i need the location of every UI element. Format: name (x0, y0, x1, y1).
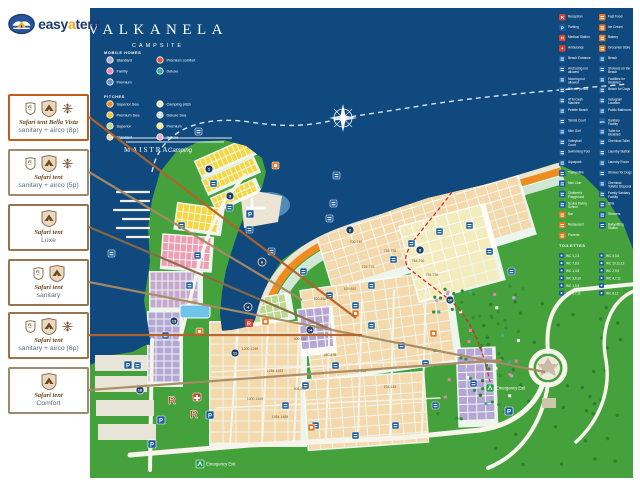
tent-card-airco-6p[interactable]: Safari tent sanitary + airco (6p) (8, 312, 89, 359)
facility-label: Groceries Store (608, 46, 631, 50)
map-facility-icon (470, 380, 477, 387)
wc-entry: WC 7,8,9 (566, 261, 580, 265)
tree (461, 289, 464, 292)
tree (479, 394, 482, 397)
mini-club-icon (559, 180, 566, 187)
tent-subtitle: sanitary + airco (6p) (18, 345, 78, 352)
plot-block (209, 321, 307, 447)
children-s-playground-icon (559, 191, 566, 198)
tree (581, 386, 584, 389)
map-facility-icon (352, 432, 359, 439)
plot-block (297, 305, 338, 357)
forest-mobile-home (433, 349, 436, 352)
reception-letter: R (190, 409, 198, 421)
plot-range-label: 520-552 (314, 297, 327, 301)
legend-label: Camping pitch (167, 103, 191, 107)
tree (519, 311, 522, 314)
ice-cream-icon (599, 24, 606, 31)
forest-mobile-home (469, 329, 472, 332)
wc-entry: WC 1,2,3 (566, 254, 580, 258)
parking-marker: P (248, 212, 252, 218)
map-facility-icon (108, 250, 115, 257)
tree (613, 459, 616, 462)
plot-range-label: 629-652 (344, 287, 357, 291)
map-subtitle: CAMPSITE (132, 43, 184, 49)
facility-glyph: WC (600, 120, 606, 124)
plot-range-label: 400-448 (294, 337, 307, 341)
forest-mobile-home (447, 290, 450, 293)
forest-mobile-home (435, 299, 438, 302)
forest-mobile-home (467, 340, 470, 343)
legend-label: Premium comfort (167, 59, 197, 63)
plot-range-label: 700-740 (350, 240, 363, 244)
tree (459, 356, 462, 359)
tree (616, 321, 619, 324)
shower-icon (25, 320, 36, 333)
tent-card-bella-vista[interactable]: Safari tent Bella Vista sanitary + airco… (8, 94, 89, 141)
scuba-diving-school-icon (559, 201, 566, 208)
tree (509, 364, 512, 367)
parking-marker: P (150, 442, 154, 448)
plot-range-label: 1400-1449 (247, 397, 263, 401)
forest-mobile-home (466, 376, 469, 379)
reception-letter: R (168, 395, 176, 407)
reception-marker: R (247, 322, 251, 328)
forest-mobile-home (515, 360, 518, 363)
wc-entry: WC 4,5,6 (606, 254, 620, 258)
maistra-brand: MAISTRA (124, 146, 170, 154)
tennis-court-icon (559, 118, 566, 125)
plot-range-label: 754-756 (426, 273, 439, 277)
map-facility-icon (246, 226, 253, 233)
plot-range-label: 104-148 (384, 385, 397, 389)
wc-entry: WC 3,7,11 (566, 291, 581, 295)
tent-shield-icon (41, 155, 57, 172)
snowflake-icon (62, 321, 73, 332)
tent-shield-icon (41, 210, 57, 227)
chemical-toilette-disposal-icon (599, 180, 606, 187)
tent-shield-icon (41, 318, 57, 335)
map-facility-icon (390, 256, 397, 263)
tent-subtitle: sanitary (37, 292, 61, 299)
facility-label: Aquapark (568, 160, 582, 164)
facility-label: Laundry Room (608, 160, 629, 164)
map-facility-icon (422, 360, 429, 367)
emergency-exit-label: Emergency Exit (206, 462, 236, 467)
map-facility-icon (186, 282, 193, 289)
tent-card-airco-5p[interactable]: Safari tent sanitary + airco (5p) (8, 149, 89, 196)
anchoring-not-allowed-icon (559, 66, 566, 73)
facilities-for-disabled-icon (599, 76, 606, 83)
tree (504, 326, 507, 329)
plot-range-label: 735-758 (384, 249, 397, 253)
legend-label: Deluxe (167, 70, 179, 74)
tree (616, 414, 619, 417)
facility-label: Beach (608, 56, 617, 60)
map-facility-icon (326, 292, 333, 299)
facility-label: Trampoline (568, 170, 584, 174)
tree (513, 300, 516, 303)
campsite-map: MAISTRA Camping VALKANELA CAMPSITE MOBIL… (90, 8, 633, 478)
tree (497, 403, 500, 406)
map-facility-icon (300, 268, 307, 275)
facility-label: Laundry Station (608, 150, 631, 154)
facility-label: Beach Entrance (568, 56, 591, 60)
plot-range-label: 1254-1283 (267, 369, 283, 373)
plot-range-label: 904-906 (294, 387, 307, 391)
tree (497, 310, 500, 313)
tree (464, 358, 467, 361)
legend-label: Deluxe Sea (167, 114, 188, 118)
tree (571, 313, 574, 316)
tree (517, 330, 520, 333)
groceries-store-icon (599, 45, 606, 52)
tree (606, 437, 609, 440)
map-facility-icon (226, 204, 233, 211)
facility-label: Ice Cream (608, 25, 623, 29)
legend-dot (157, 57, 163, 63)
map-facility-icon (432, 402, 439, 409)
map-facility-icon (195, 128, 202, 135)
forest-mobile-home (512, 296, 515, 299)
tree (512, 368, 515, 371)
tree (585, 409, 588, 412)
showers-icon (599, 212, 606, 219)
tent-title: Safari tent (34, 284, 62, 291)
tree (487, 343, 490, 346)
forest-mobile-home (517, 339, 520, 342)
forest-mobile-home (469, 291, 472, 294)
tree (562, 406, 565, 409)
map-facility-icon (330, 200, 337, 207)
facility-label: Fast Food (608, 14, 623, 18)
tree (497, 322, 500, 325)
legend-label: Superior Sea (117, 103, 140, 107)
map-facility-icon (466, 222, 473, 229)
map-facility-icon (392, 422, 399, 429)
map-facility-icon (486, 248, 493, 255)
legend-dot (107, 57, 113, 63)
map-facility-icon (332, 362, 339, 369)
tree (487, 367, 490, 370)
wc-entry: WC 1,4,8 (566, 269, 580, 273)
facility-label: Medical Station (568, 35, 590, 39)
tree (491, 316, 494, 319)
tree (432, 310, 435, 313)
tree (566, 384, 569, 387)
snowflake-icon (62, 103, 73, 114)
facility-glyph: + (561, 46, 564, 51)
tree (489, 303, 492, 306)
tent-title: Safari tent Bella Vista (19, 119, 78, 126)
facility-label: Mini Golf (568, 129, 581, 133)
legend-label: Superior (117, 125, 132, 129)
facility-label: Restaurant (568, 222, 584, 226)
legend-dot (157, 134, 163, 140)
roundabout (531, 351, 565, 385)
wc-entry: WC 4,7,11 (606, 276, 621, 280)
facility-label: Mini Club (568, 181, 582, 185)
plot-range-label: 304-348 (354, 369, 367, 373)
tree (499, 374, 502, 377)
facility-label: Swimming Pool (568, 150, 590, 154)
plot-range-label: 1454-1489 (272, 415, 288, 419)
mini-golf-icon (559, 128, 566, 135)
facility-glyph: P (561, 25, 564, 30)
tree (503, 319, 506, 322)
legend-dot (157, 112, 163, 118)
map-facility-icon (194, 252, 201, 259)
swimming-pool (180, 305, 210, 318)
forest-mobile-home (466, 368, 469, 371)
map-facility-icon (134, 362, 141, 369)
tree (514, 433, 517, 436)
tree (560, 462, 563, 465)
wc-section-header: TOILETTES (559, 243, 585, 248)
tree (482, 324, 485, 327)
pebble-beach-icon (559, 108, 566, 115)
babysitting-station-icon (599, 222, 606, 229)
legend-label: Family (117, 70, 128, 74)
disclaimer-line (126, 141, 224, 143)
facility-label: Parking (568, 25, 579, 29)
map-facility-icon (210, 180, 217, 187)
emergency-exit-label: Emergency Exit (496, 386, 526, 391)
facility-label: Showers (608, 212, 621, 216)
tree (508, 285, 511, 288)
map-facility-icon (398, 342, 405, 349)
tent-shield-icon (41, 373, 57, 390)
pizzeria-icon (559, 232, 566, 239)
facility-label: Sink (608, 202, 615, 206)
instagram-location-icon (599, 97, 606, 104)
tree (541, 302, 544, 305)
facility-label: Bakery (608, 35, 618, 39)
tent-shield-icon (41, 100, 57, 117)
zone-number: 10 (448, 298, 453, 303)
legend-dot (107, 79, 113, 85)
easyatent-logo-icon (8, 12, 35, 36)
legend-label: Standard (117, 59, 132, 63)
facility-label: Ambulance (568, 46, 584, 50)
bakery-icon (599, 35, 606, 42)
showers-on-the-beach-icon (599, 66, 606, 73)
wc-entry: WC 2,5,9 (606, 269, 620, 273)
legend-dot (107, 123, 113, 129)
public-bathroom-icon (599, 108, 606, 115)
tree (588, 395, 591, 398)
mooring-not-allowed-icon (559, 76, 566, 83)
facility-label: Pizzeria (568, 233, 580, 237)
tent-title: Safari tent (34, 174, 62, 181)
wc-entry: WC 10,11,12 (606, 261, 625, 265)
tent-card-luxe[interactable]: Safari tent Luxe (8, 204, 89, 251)
facility-label: Children'sPlayground (568, 191, 584, 199)
facility-label: Shower for Dogs (608, 170, 632, 174)
maistra-camping: Camping (168, 148, 193, 154)
tree (521, 287, 524, 290)
tree (455, 417, 458, 420)
sink-icon (599, 201, 606, 208)
shower-for-dogs-icon (599, 170, 606, 177)
map-facility-icon (368, 282, 375, 289)
tree (481, 387, 484, 390)
tree (521, 463, 524, 466)
toilet-for-disabled-icon (599, 128, 606, 135)
map-facility-icon (352, 302, 359, 309)
tree (599, 317, 602, 320)
tree (469, 377, 472, 380)
tree (443, 288, 446, 291)
wc-entry: WC 2,6,10 (606, 284, 621, 288)
tent-shield-icon (49, 265, 65, 282)
legend-dot (107, 112, 113, 118)
facility-label: Toilet forDisabled (608, 129, 621, 137)
tree (472, 316, 475, 319)
tree (514, 293, 517, 296)
facility-label: Silence period (568, 87, 588, 91)
map-facility-icon (333, 172, 340, 179)
plot-range-label: 716-719 (362, 265, 375, 269)
beach-for-dogs-icon (599, 87, 606, 94)
tree (460, 301, 463, 304)
facility-label: Chemical Toilet (608, 139, 630, 143)
parking-marker: P (159, 418, 163, 424)
legend-mobile-homes-header: MOBILE HOMES (104, 50, 141, 55)
map-title: VALKANELA (90, 22, 228, 38)
forest-mobile-home (508, 373, 511, 376)
facility-label: Beach for Dogs (608, 87, 630, 91)
tent-card-sanitary[interactable]: Safari tent sanitary (8, 259, 89, 306)
tree (436, 412, 439, 415)
easyatent-logo[interactable]: easyatent (8, 11, 100, 37)
map-facility-icon (282, 402, 289, 409)
map-facility-icon (436, 228, 443, 235)
legend-label: Premium Sea (117, 114, 141, 118)
restaurant-icon (559, 222, 566, 229)
tree (556, 323, 559, 326)
family-sanitary-facility-icon (599, 191, 606, 198)
atm-cash-machine-icon (559, 97, 566, 104)
tent-card-comfort[interactable]: Safari tent Comfort (8, 367, 89, 414)
tree (592, 370, 595, 373)
tent-title: Safari tent (34, 392, 62, 399)
tent-title: Safari tent (34, 337, 62, 344)
logo-wordmark: easyatent (38, 16, 100, 32)
chemical-toilet-icon (599, 139, 606, 146)
legend-dot (107, 101, 113, 107)
parking-marker: P (507, 409, 511, 415)
legend-dot (157, 101, 163, 107)
wc-entry: WC 8,12 (606, 291, 619, 295)
tree (500, 357, 503, 360)
tree (533, 341, 536, 344)
beach-entrance-icon (559, 56, 566, 63)
tree (591, 412, 594, 415)
tree (619, 338, 622, 341)
legend-pitches-header: PITCHES (104, 94, 125, 99)
tree (584, 439, 587, 442)
legend-label: Premium (167, 125, 182, 129)
trampoline-icon (559, 170, 566, 177)
tree (554, 425, 557, 428)
tree (491, 400, 494, 403)
map-facility-icon (162, 332, 169, 339)
forest-mobile-home (495, 306, 498, 309)
parking-marker: P (208, 413, 212, 419)
tree (460, 417, 463, 420)
plot-range-label: 450-498 (324, 353, 337, 357)
facility-label: Pebble Beach (568, 108, 588, 112)
tree (497, 352, 500, 355)
forest-mobile-home (493, 293, 496, 296)
wc-entry: WC 3,6,10 (566, 276, 581, 280)
campsite-map-page: { "logo": {"text_easy": "easy", "text_a"… (0, 0, 640, 500)
forest-mobile-home (508, 361, 511, 364)
zone-number: 18 (138, 388, 143, 393)
laundry-room-icon (599, 160, 606, 167)
forest-mobile-home (448, 378, 451, 381)
tent-subtitle: Luxe (41, 237, 56, 244)
legend-dot (157, 68, 163, 74)
tree (473, 389, 476, 392)
legend-dot (107, 68, 113, 74)
tree (433, 296, 436, 299)
laundry-station-icon (599, 149, 606, 156)
tent-subtitle: Comfort (36, 400, 60, 407)
map-facility-icon (508, 268, 515, 275)
parking-marker: P (126, 363, 130, 369)
zone-number: 14 (308, 328, 313, 333)
tree (605, 306, 608, 309)
plot-range-label: 764-790 (412, 259, 425, 263)
map-facility-icon (368, 322, 375, 329)
shower-icon (25, 102, 36, 115)
tree (593, 457, 596, 460)
tree (451, 308, 454, 311)
facility-label: Tennis Court (568, 118, 586, 122)
shower-icon (25, 157, 36, 170)
shower-icon (33, 267, 44, 280)
map-facility-icon (408, 240, 415, 247)
tree (593, 402, 596, 405)
map-facility-icon (268, 248, 275, 255)
forest-mobile-home (494, 367, 497, 370)
map-facility-icon (178, 222, 185, 229)
aquapark-icon (559, 160, 566, 167)
tree (472, 293, 475, 296)
tent-title: Safari tent (34, 229, 62, 236)
tree (481, 379, 484, 382)
snowflake-icon (62, 158, 73, 169)
tree (478, 315, 481, 318)
building (542, 398, 556, 408)
tree (494, 447, 497, 450)
tree (439, 296, 442, 299)
facility-label: Reception (568, 14, 583, 18)
tent-subtitle: sanitary + airco (5p) (18, 182, 78, 189)
swimming-pool-icon (559, 149, 566, 156)
volleyball-court-icon (559, 139, 566, 146)
plot-range-label: 1200-1249 (242, 347, 258, 351)
forest-mobile-home (444, 395, 447, 398)
legend-label: Standard (117, 136, 132, 140)
forest-mobile-home (501, 334, 504, 337)
legend-dot (107, 134, 113, 140)
tree (452, 292, 455, 295)
wc-entry: WC 1,5,9 (566, 284, 580, 288)
forest-mobile-home (484, 402, 487, 405)
